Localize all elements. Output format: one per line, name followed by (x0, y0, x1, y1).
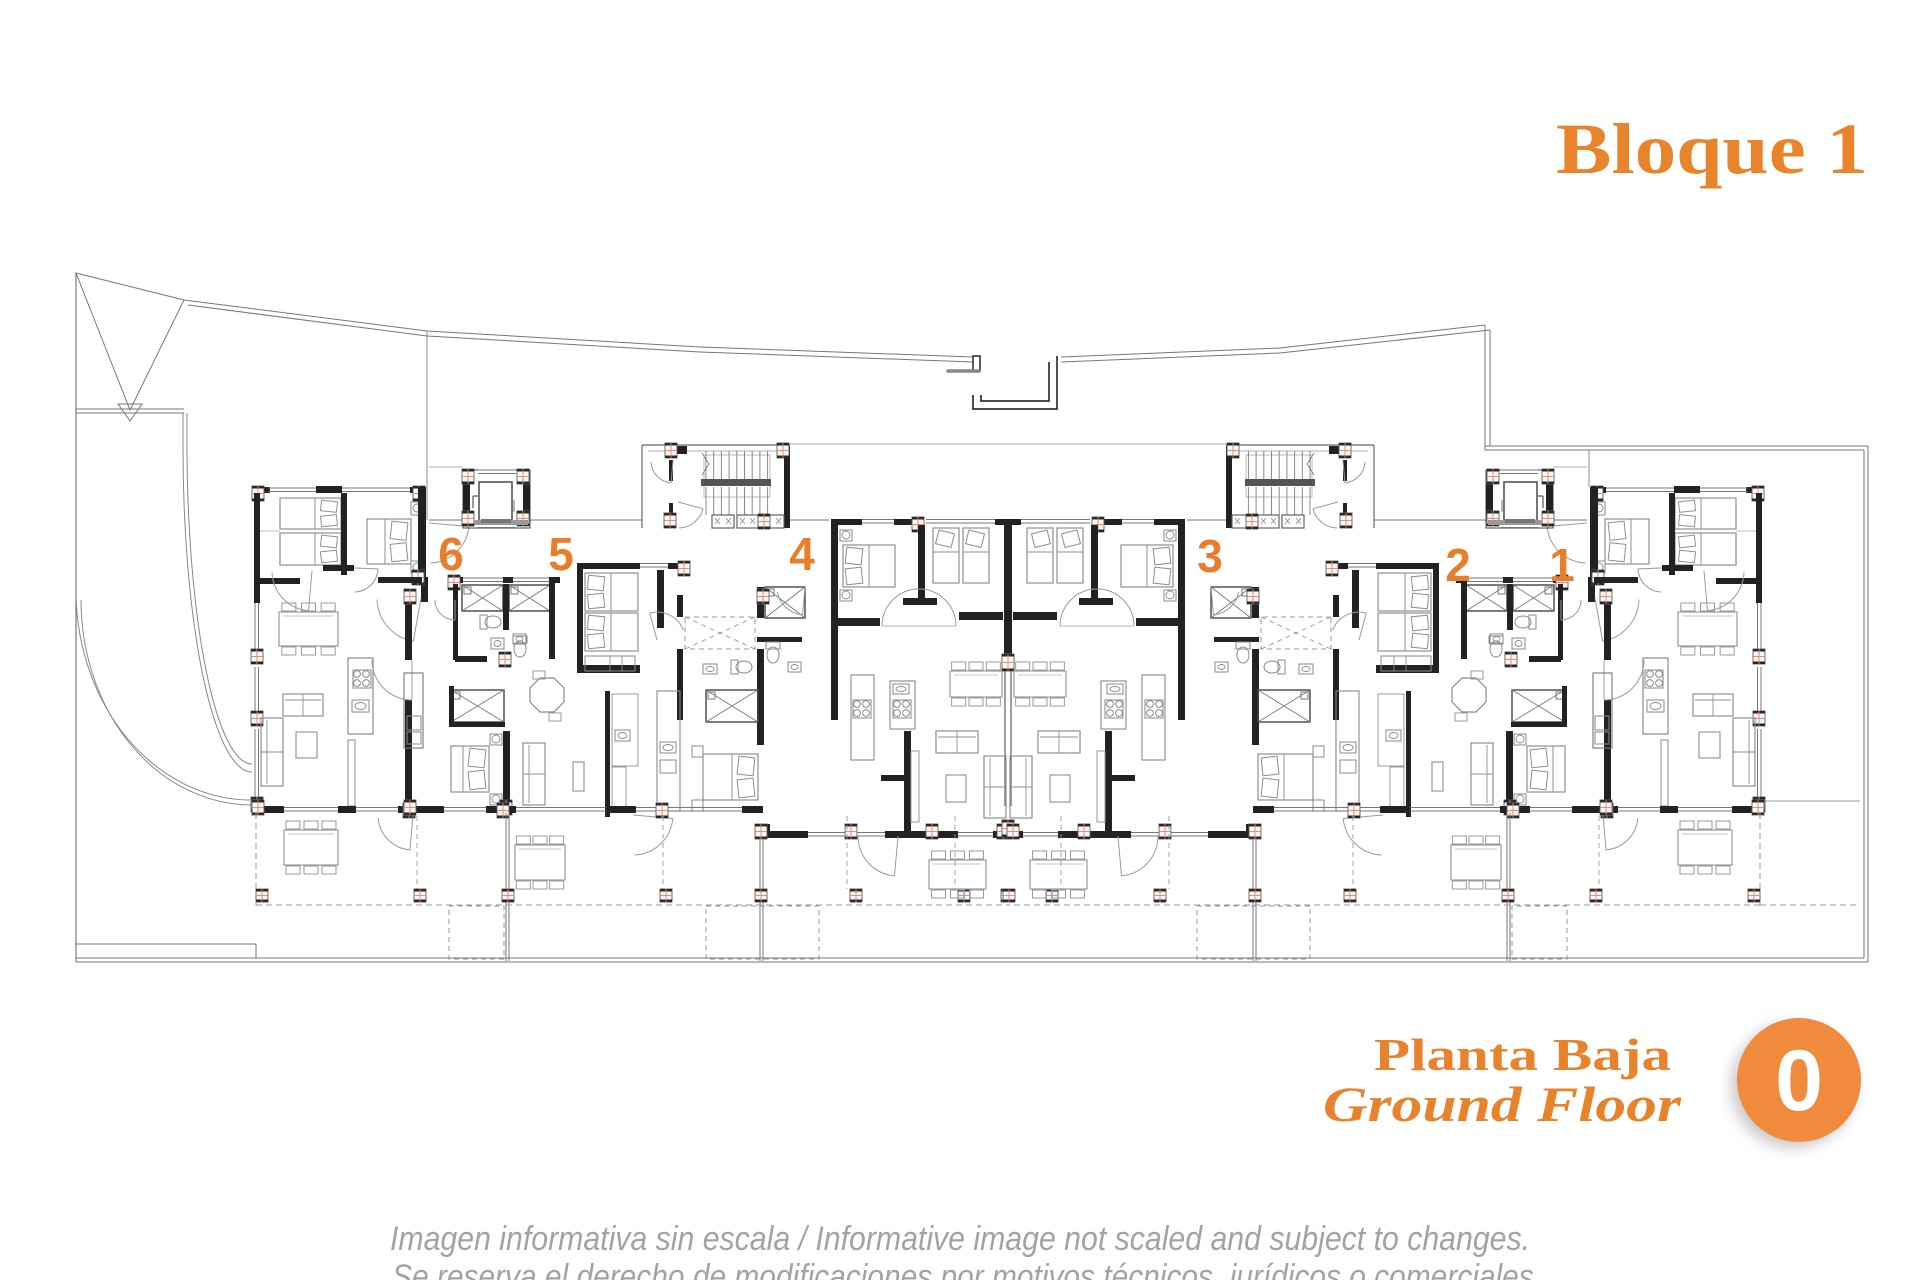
svg-text:6: 6 (438, 528, 464, 580)
svg-text:Planta Baja: Planta Baja (1374, 1029, 1671, 1080)
svg-text:Se reserva el derecho de modif: Se reserva el derecho de modificaciones … (392, 1258, 1542, 1280)
svg-text:Ground Floor: Ground Floor (1323, 1076, 1682, 1132)
svg-text:Bloque 1: Bloque 1 (1556, 109, 1868, 189)
svg-text:0: 0 (1775, 1033, 1823, 1129)
svg-text:2: 2 (1445, 539, 1471, 591)
svg-text:5: 5 (548, 528, 574, 580)
svg-text:3: 3 (1197, 530, 1223, 582)
svg-text:Imagen informativa sin escala: Imagen informativa sin escala / Informat… (390, 1220, 1530, 1258)
svg-text:4: 4 (789, 528, 815, 580)
svg-text:1: 1 (1549, 539, 1575, 591)
